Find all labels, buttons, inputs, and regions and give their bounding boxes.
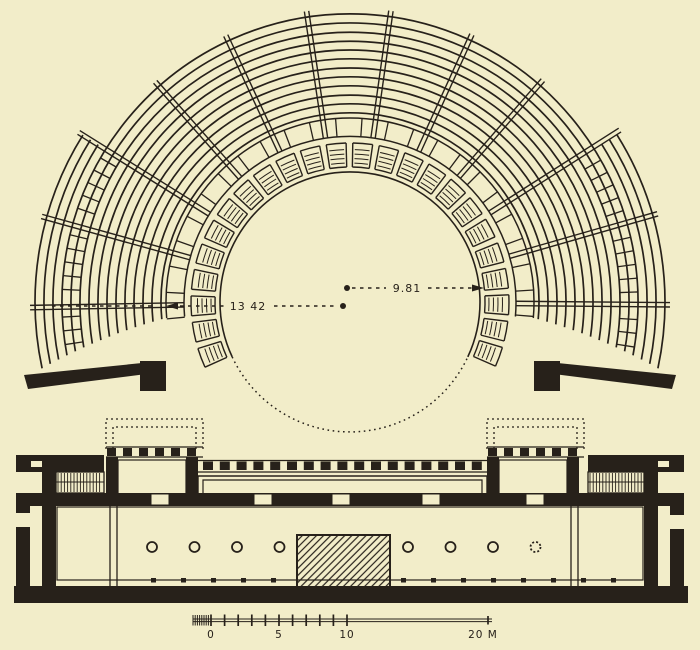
dimension-label-cavea-radius: 13 42 xyxy=(230,300,267,313)
foundation-block xyxy=(297,535,390,588)
scale-label-5: 5 xyxy=(275,629,283,641)
dimension-label-orchestra-radius: 9.81 xyxy=(393,282,422,295)
orchestra-center-dot-2 xyxy=(344,285,350,291)
scale-label-0: 0 xyxy=(207,629,215,641)
orchestra-center-dot xyxy=(340,303,346,309)
theatre-plan-figure: 13 42 9.81 0 5 10 20 M xyxy=(0,0,700,650)
theatre-plan-drawing: 13 42 9.81 0 5 10 20 M xyxy=(0,0,700,650)
scale-label-20m: 20 M xyxy=(468,629,498,641)
scale-label-10: 10 xyxy=(339,629,354,641)
